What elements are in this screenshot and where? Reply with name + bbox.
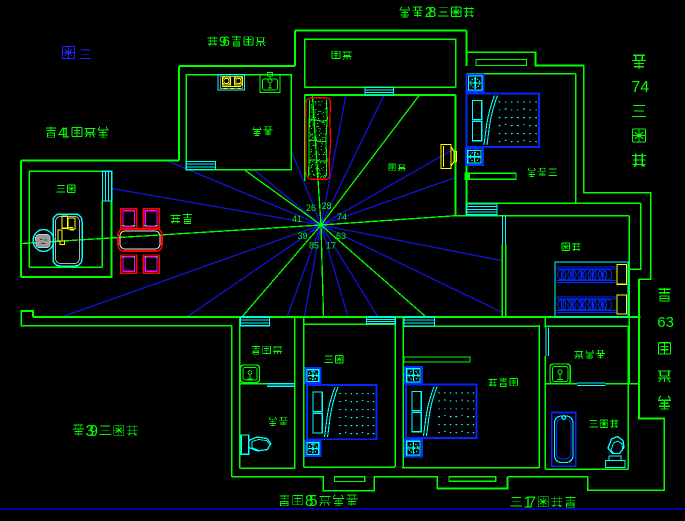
svg-text:74: 74 bbox=[337, 212, 347, 222]
svg-text:41: 41 bbox=[58, 125, 70, 141]
svg-text:41: 41 bbox=[292, 214, 302, 224]
svg-text:85: 85 bbox=[309, 241, 319, 251]
svg-text:17: 17 bbox=[326, 241, 336, 251]
svg-text:39: 39 bbox=[86, 423, 99, 440]
svg-text:26: 26 bbox=[306, 203, 316, 213]
svg-text:28: 28 bbox=[322, 201, 332, 211]
svg-text:96: 96 bbox=[219, 34, 230, 49]
svg-text:63: 63 bbox=[657, 314, 674, 331]
svg-text:74: 74 bbox=[631, 79, 649, 96]
svg-text:63: 63 bbox=[336, 231, 346, 241]
svg-text:85: 85 bbox=[305, 493, 318, 510]
svg-text:39: 39 bbox=[298, 231, 308, 241]
svg-text:28: 28 bbox=[425, 5, 437, 21]
